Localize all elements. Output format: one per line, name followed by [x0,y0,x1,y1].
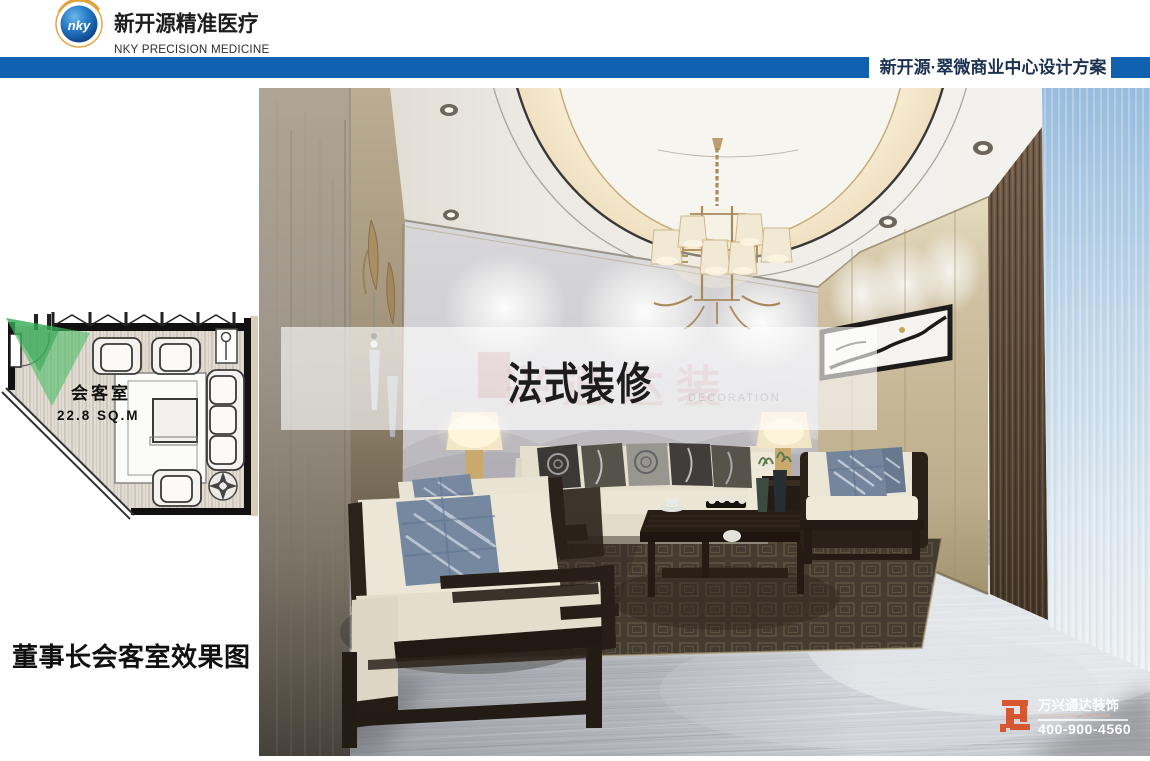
svg-text:nky: nky [68,18,91,33]
svg-text:22.8 SQ.M: 22.8 SQ.M [57,408,140,423]
svg-text:会客室: 会客室 [71,383,131,403]
svg-text:400-900-4560: 400-900-4560 [1038,721,1131,737]
svg-text:万兴通达装饰: 万兴通达装饰 [1037,697,1119,713]
svg-text:WANXING TONGDA DECORATION: WANXING TONGDA DECORATION [1038,713,1110,718]
